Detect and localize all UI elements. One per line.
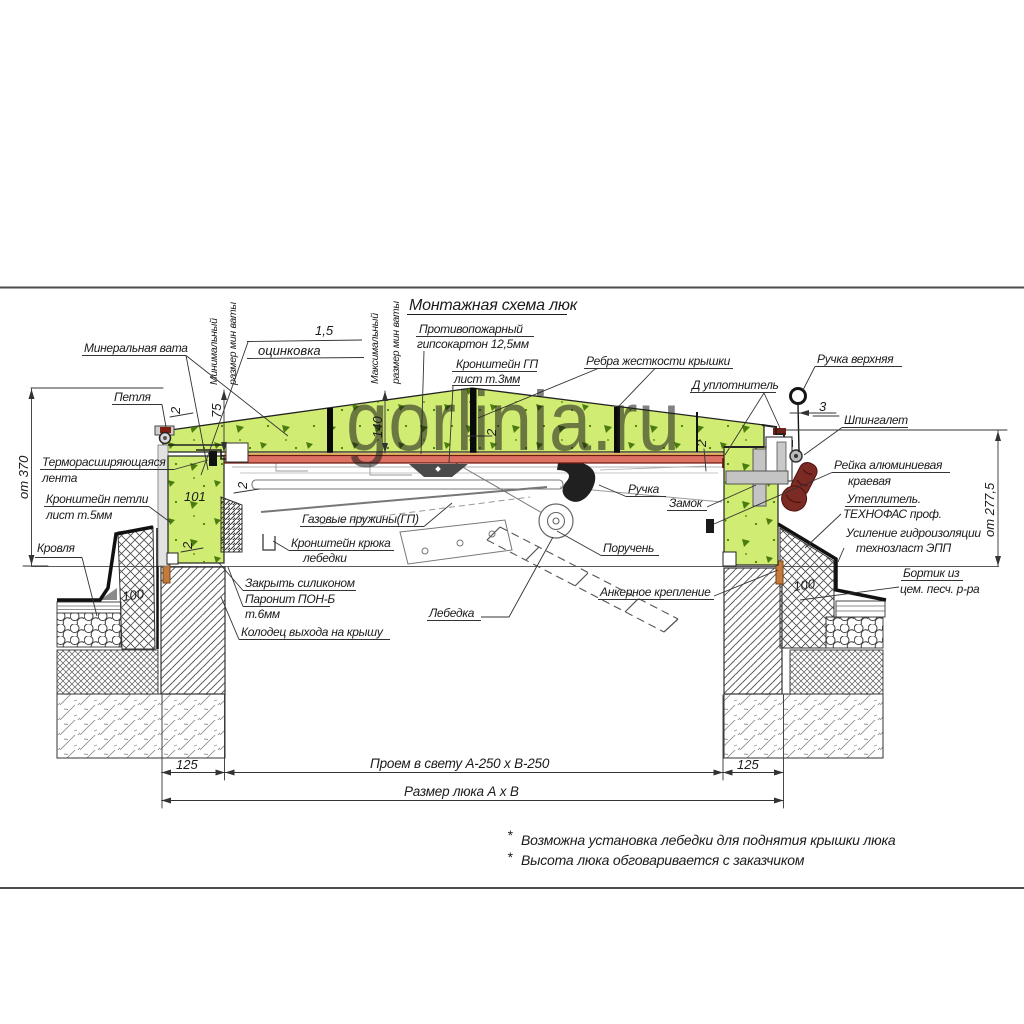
svg-text:2: 2 <box>180 541 195 550</box>
svg-text:Рейка алюминиевая: Рейка алюминиевая <box>834 458 943 472</box>
svg-text:gorlinia.ru: gorlinia.ru <box>346 374 680 468</box>
svg-text:Высота люка обговаривается с з: Высота люка обговаривается с заказчиком <box>521 852 805 868</box>
svg-text:Кронштейн ГП: Кронштейн ГП <box>456 357 538 371</box>
svg-text:Бортик из: Бортик из <box>903 566 960 580</box>
svg-text:2: 2 <box>694 439 709 448</box>
svg-text:Паронит ПОН-Б: Паронит ПОН-Б <box>245 592 335 606</box>
svg-text:Закрыть силиконом: Закрыть силиконом <box>245 576 355 590</box>
svg-text:Колодец выхода на крышу: Колодец выхода на крышу <box>241 625 384 639</box>
svg-text:Поручень: Поручень <box>603 541 654 555</box>
svg-text:Анкерное крепление: Анкерное крепление <box>599 585 711 599</box>
svg-text:Кронштейн петли: Кронштейн петли <box>46 492 149 506</box>
svg-text:Минимальный: Минимальный <box>208 318 220 385</box>
svg-text:Шпингалет: Шпингалет <box>844 413 908 427</box>
svg-text:125: 125 <box>176 757 198 772</box>
svg-text:цем. песч. р-ра: цем. песч. р-ра <box>900 582 980 596</box>
svg-text:Усиление гидроизоляции: Усиление гидроизоляции <box>845 526 981 540</box>
svg-text:технозласт ЭПП: технозласт ЭПП <box>856 541 951 555</box>
svg-text:т.6мм: т.6мм <box>245 607 280 621</box>
svg-text:Д уплотнитель: Д уплотнитель <box>690 378 779 392</box>
svg-text:100: 100 <box>121 586 145 604</box>
svg-text:*: * <box>507 849 513 865</box>
svg-text:100: 100 <box>792 576 816 594</box>
svg-text:Проем в свету А-250 х В-250: Проем в свету А-250 х В-250 <box>370 756 550 771</box>
svg-text:*: * <box>507 827 513 843</box>
svg-text:лебедки: лебедки <box>302 551 347 565</box>
svg-text:Лебедка: Лебедка <box>428 606 475 620</box>
svg-text:от 277,5: от 277,5 <box>982 482 997 537</box>
svg-text:краевая: краевая <box>848 474 892 488</box>
svg-text:Замок: Замок <box>669 496 704 510</box>
svg-text:125: 125 <box>737 757 759 772</box>
svg-text:3: 3 <box>819 399 827 414</box>
svg-text:Монтажная схема люк: Монтажная схема люк <box>409 297 579 314</box>
svg-text:Ручка верхняя: Ручка верхняя <box>817 352 894 366</box>
svg-text:Ручка: Ручка <box>628 482 660 496</box>
svg-text:лист т.5мм: лист т.5мм <box>45 508 112 522</box>
svg-text:от 370: от 370 <box>16 455 31 499</box>
svg-text:Петля: Петля <box>114 390 152 404</box>
svg-text:2: 2 <box>235 481 250 490</box>
svg-text:Ребра жесткости крышки: Ребра жесткости крышки <box>586 354 731 368</box>
svg-text:оцинковка: оцинковка <box>258 343 321 358</box>
svg-text:Кровля: Кровля <box>37 541 76 555</box>
svg-text:Газовые пружины(ГП): Газовые пружины(ГП) <box>302 512 419 526</box>
svg-text:Возможна установка лебедки для: Возможна установка лебедки для поднятия … <box>521 832 896 848</box>
svg-text:лента: лента <box>41 471 78 485</box>
svg-text:1,5: 1,5 <box>315 323 334 338</box>
svg-text:Размер люка А х В: Размер люка А х В <box>404 784 519 799</box>
svg-text:гипсокартон 12,5мм: гипсокартон 12,5мм <box>417 337 529 351</box>
svg-text:ТЕХНОФАС проф.: ТЕХНОФАС проф. <box>843 507 942 521</box>
svg-text:Кронштейн крюка: Кронштейн крюка <box>291 536 391 550</box>
svg-text:Противопожарный: Противопожарный <box>419 322 523 336</box>
svg-text:2: 2 <box>168 406 183 415</box>
svg-text:Утеплитель.: Утеплитель. <box>846 492 921 506</box>
svg-text:Терморасширяющаяся: Терморасширяющаяся <box>42 455 166 469</box>
svg-text:Минеральная вата: Минеральная вата <box>84 341 188 355</box>
svg-text:размер мин ваты: размер мин ваты <box>390 301 402 385</box>
svg-text:101: 101 <box>184 489 206 504</box>
